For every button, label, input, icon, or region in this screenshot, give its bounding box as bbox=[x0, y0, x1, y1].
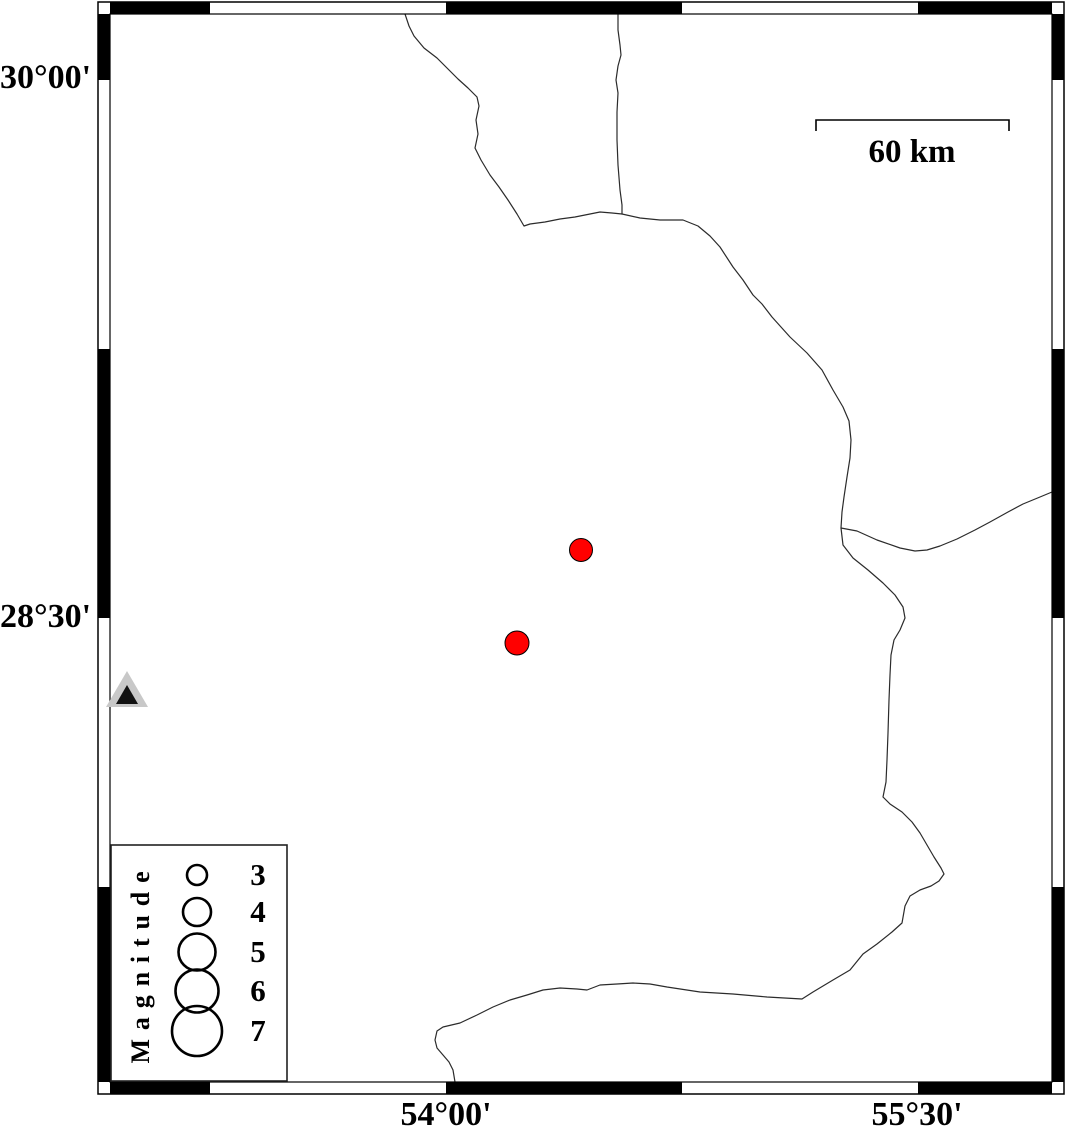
frame-black-top-0 bbox=[110, 2, 210, 14]
frame-black-left-0 bbox=[98, 14, 110, 80]
earthquake-marker-2 bbox=[505, 631, 529, 655]
boundary-line-2 bbox=[616, 14, 622, 214]
legend-magnitude-label-5: 5 bbox=[236, 931, 280, 973]
scale-bar bbox=[816, 120, 1009, 131]
frame-black-bottom-0 bbox=[110, 1082, 210, 1094]
seismicity-map: 30°00' 28°30' 54°00' 55°30' 60 km Magnit… bbox=[0, 0, 1066, 1131]
lon-label-54-00: 54°00' bbox=[356, 1094, 536, 1131]
frame-black-right-0 bbox=[1052, 14, 1064, 80]
legend-magnitude-label-4: 4 bbox=[236, 891, 280, 933]
frame-black-top-2 bbox=[918, 2, 1052, 14]
frame-black-right-2 bbox=[1052, 887, 1064, 1082]
legend-title: Magnitude bbox=[125, 843, 157, 1083]
frame-black-top-1 bbox=[446, 2, 682, 14]
frame-black-bottom-1 bbox=[446, 1082, 682, 1094]
frame-black-right-1 bbox=[1052, 349, 1064, 618]
lon-label-55-30: 55°30' bbox=[827, 1094, 1007, 1131]
boundary-line-3 bbox=[841, 492, 1052, 551]
lat-label-28-30: 28°30' bbox=[0, 596, 90, 638]
frame-black-bottom-2 bbox=[918, 1082, 1052, 1094]
lat-label-30-00: 30°00' bbox=[0, 57, 90, 99]
earthquake-marker-1 bbox=[570, 539, 593, 562]
legend-magnitude-label-3: 3 bbox=[236, 854, 280, 896]
legend-magnitude-label-7: 7 bbox=[236, 1010, 280, 1052]
scale-bar-label: 60 km bbox=[812, 131, 1012, 173]
frame-black-left-2 bbox=[98, 887, 110, 1082]
frame-black-left-1 bbox=[98, 349, 110, 618]
boundary-line-1 bbox=[405, 14, 944, 1082]
legend-magnitude-label-6: 6 bbox=[236, 970, 280, 1012]
